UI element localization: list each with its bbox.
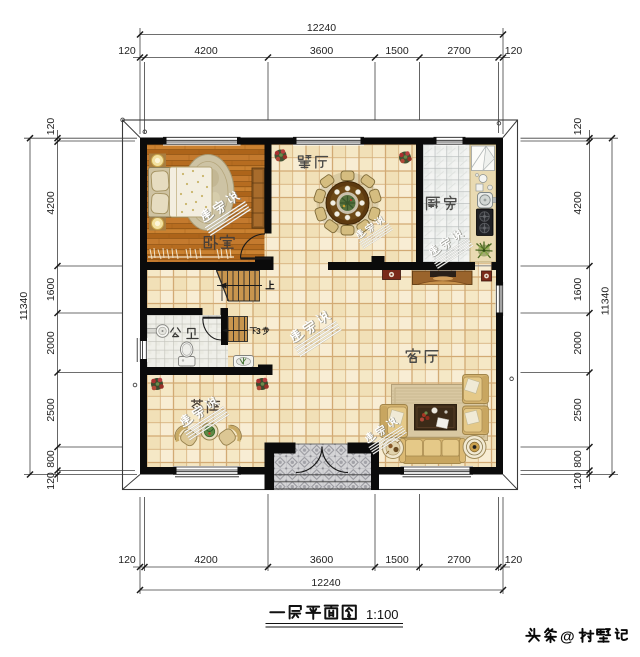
svg-text:2700: 2700: [447, 554, 471, 566]
svg-text:800: 800: [572, 450, 584, 468]
svg-text:120: 120: [572, 118, 584, 136]
svg-text:120: 120: [118, 554, 136, 566]
svg-text:4200: 4200: [194, 554, 218, 566]
svg-text:120: 120: [45, 472, 57, 490]
svg-text:2700: 2700: [447, 45, 471, 57]
svg-text:120: 120: [118, 45, 136, 57]
svg-text:4200: 4200: [572, 191, 584, 215]
svg-text:12240: 12240: [307, 22, 336, 34]
svg-text:120: 120: [45, 118, 57, 136]
svg-text:800: 800: [45, 450, 57, 468]
svg-text:3600: 3600: [310, 554, 334, 566]
svg-text:1600: 1600: [572, 278, 584, 302]
svg-text:12240: 12240: [311, 577, 340, 589]
svg-text:@: @: [560, 629, 575, 646]
svg-text:3: 3: [256, 326, 261, 336]
svg-text:1600: 1600: [45, 278, 57, 302]
svg-text:120: 120: [572, 472, 584, 490]
svg-text:11340: 11340: [600, 287, 612, 316]
svg-text:11340: 11340: [18, 292, 30, 321]
svg-text:3600: 3600: [310, 45, 334, 57]
svg-text:1:100: 1:100: [366, 607, 399, 622]
svg-text:4200: 4200: [45, 191, 57, 215]
svg-text:120: 120: [505, 554, 523, 566]
svg-text:2500: 2500: [572, 398, 584, 422]
svg-text:2500: 2500: [45, 398, 57, 422]
svg-text:2000: 2000: [572, 331, 584, 355]
svg-text:2000: 2000: [45, 331, 57, 355]
svg-text:1500: 1500: [385, 45, 409, 57]
svg-text:1500: 1500: [385, 554, 409, 566]
svg-text:4200: 4200: [194, 45, 218, 57]
svg-text:120: 120: [505, 45, 523, 57]
